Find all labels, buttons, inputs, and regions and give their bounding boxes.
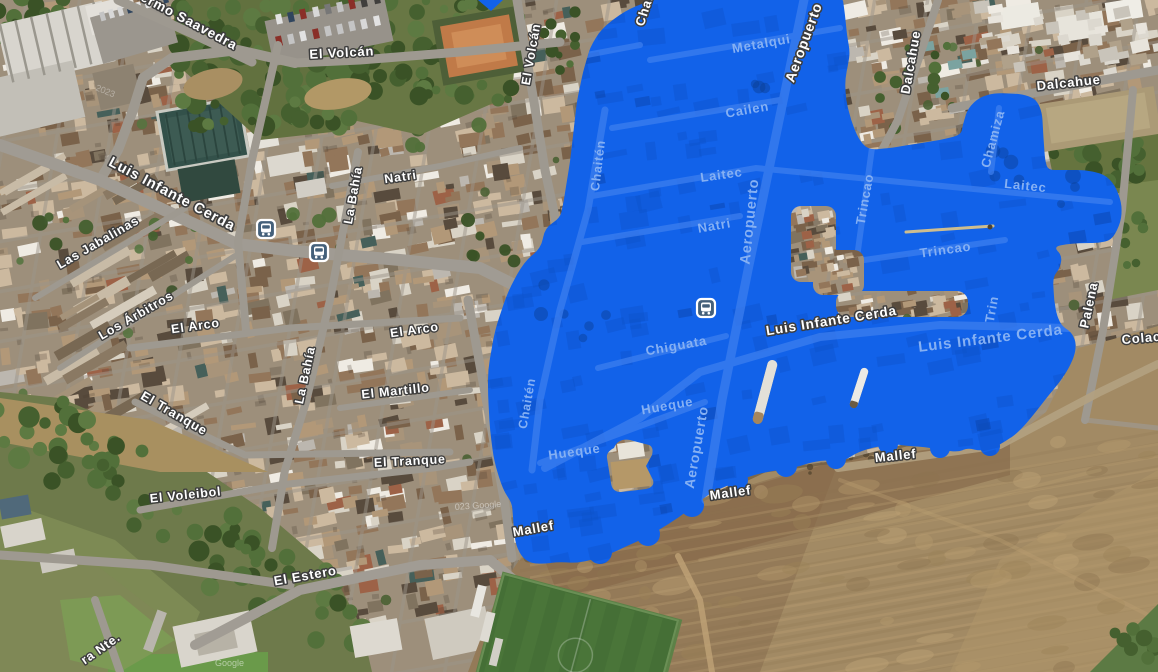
svg-text:Google: Google	[215, 658, 244, 668]
svg-text:Colaco: Colaco	[1121, 328, 1158, 347]
